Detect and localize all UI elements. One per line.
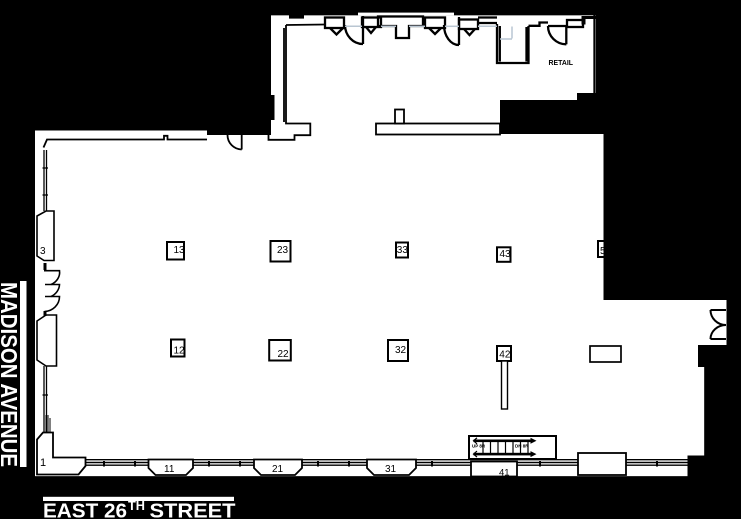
svg-text:32: 32: [395, 345, 407, 356]
svg-text:42: 42: [499, 349, 511, 360]
svg-text:EAST 26: EAST 26: [43, 501, 127, 519]
svg-text:1: 1: [40, 457, 46, 469]
svg-text:43: 43: [500, 249, 512, 260]
svg-text:3: 3: [40, 246, 46, 257]
svg-text:33: 33: [397, 245, 409, 256]
svg-text:UP 8R: UP 8R: [472, 444, 486, 449]
svg-text:TH: TH: [128, 499, 145, 513]
svg-text:21: 21: [272, 464, 284, 475]
svg-text:MADISON AVENUE: MADISON AVENUE: [0, 282, 22, 467]
svg-text:STREET: STREET: [150, 501, 236, 519]
svg-text:11: 11: [164, 464, 175, 475]
svg-text:13: 13: [174, 245, 186, 256]
svg-text:RETAIL: RETAIL: [549, 60, 574, 67]
svg-text:DN 8R: DN 8R: [515, 444, 529, 449]
svg-text:31: 31: [385, 464, 397, 475]
svg-text:41: 41: [499, 467, 510, 478]
svg-text:22: 22: [278, 349, 290, 360]
svg-text:12: 12: [174, 345, 186, 356]
svg-text:23: 23: [277, 245, 289, 256]
